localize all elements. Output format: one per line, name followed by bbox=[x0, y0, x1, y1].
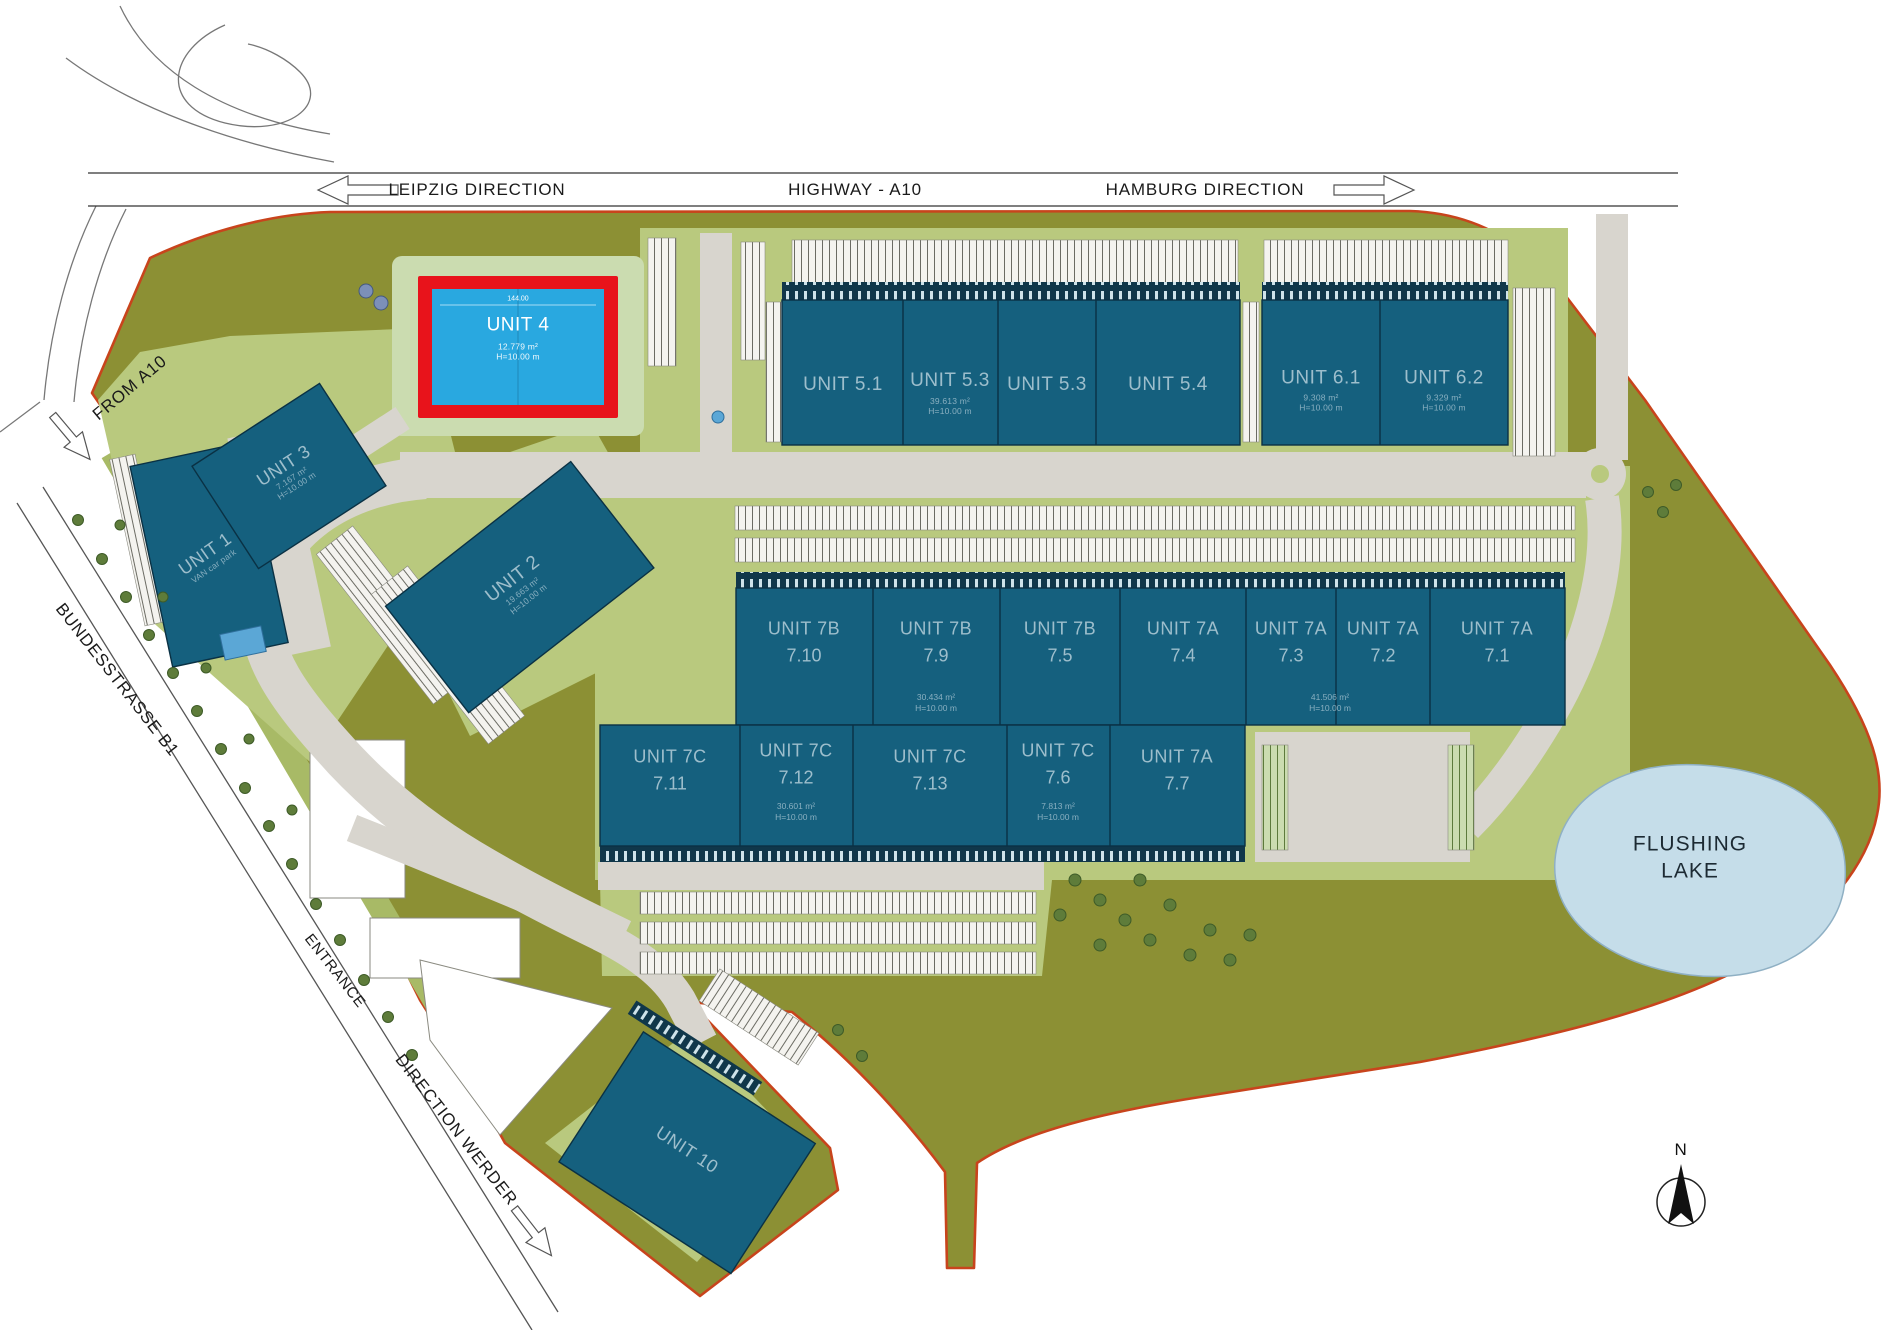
unit-7-9-area: 30.434 m²H=10.00 m bbox=[915, 692, 957, 714]
unit-7-2-label: UNIT 7A7.2 bbox=[1347, 618, 1419, 665]
hamburg-direction-label: HAMBURG DIRECTION bbox=[1106, 180, 1305, 200]
north-arrow-icon bbox=[1657, 1164, 1705, 1226]
unit-7-12-area: 30.601 m²H=10.00 m bbox=[775, 801, 817, 823]
unit-5-3a-label: UNIT 5.3 39.613 m² H=10.00 m bbox=[910, 370, 990, 416]
flushing-lake-label: FLUSHING LAKE bbox=[1633, 831, 1747, 886]
leipzig-direction-label: LEIPZIG DIRECTION bbox=[388, 180, 565, 200]
unit-7-10-label: UNIT 7B7.10 bbox=[768, 618, 840, 665]
site-plan: LEIPZIG DIRECTION HIGHWAY - A10 HAMBURG … bbox=[0, 0, 1901, 1330]
compass-north-label: N bbox=[1674, 1140, 1687, 1160]
unit-7-3-label: UNIT 7A7.3 bbox=[1255, 618, 1327, 665]
werder-arrow-icon bbox=[505, 1201, 561, 1263]
unit-7-5-label: UNIT 7B7.5 bbox=[1024, 618, 1096, 665]
unit-7-6-area: 7.813 m²H=10.00 m bbox=[1037, 801, 1079, 823]
unit-7-9-label: UNIT 7B7.9 bbox=[900, 618, 972, 665]
hamburg-arrow-icon bbox=[1334, 176, 1414, 204]
unit-7-1-label: UNIT 7A7.1 bbox=[1461, 618, 1533, 665]
unit-7-13-label: UNIT 7C7.13 bbox=[893, 746, 966, 793]
unit-7-7-label: UNIT 7A7.7 bbox=[1141, 746, 1213, 793]
unit-7-3-area: 41.506 m²H=10.00 m bbox=[1309, 692, 1351, 714]
unit-7-6-label: UNIT 7C7.6 bbox=[1021, 740, 1094, 787]
unit-5-3b-label: UNIT 5.3 bbox=[1007, 374, 1087, 396]
unit-5-1-label: UNIT 5.1 bbox=[803, 374, 883, 396]
unit-6-2-label: UNIT 6.2 9.329 m² H=10.00 m bbox=[1404, 367, 1484, 412]
highway-a10-label: HIGHWAY - A10 bbox=[788, 180, 922, 200]
unit-7-4-label: UNIT 7A7.4 bbox=[1147, 618, 1219, 665]
unit-5-block-building[interactable] bbox=[782, 300, 1240, 445]
unit-6-1-label: UNIT 6.1 9.308 m² H=10.00 m bbox=[1281, 367, 1361, 412]
unit-4-dimension: 144.00 bbox=[507, 296, 528, 303]
leipzig-arrow-icon bbox=[318, 176, 398, 204]
unit-4-label: UNIT 4 12.779 m² H=10.00 m bbox=[487, 314, 550, 361]
unit-5-4-label: UNIT 5.4 bbox=[1128, 374, 1208, 396]
unit-7-12-label: UNIT 7C7.12 bbox=[759, 740, 832, 787]
from-a10-arrow-icon bbox=[44, 407, 100, 467]
unit-7-11-label: UNIT 7C7.11 bbox=[633, 746, 706, 793]
